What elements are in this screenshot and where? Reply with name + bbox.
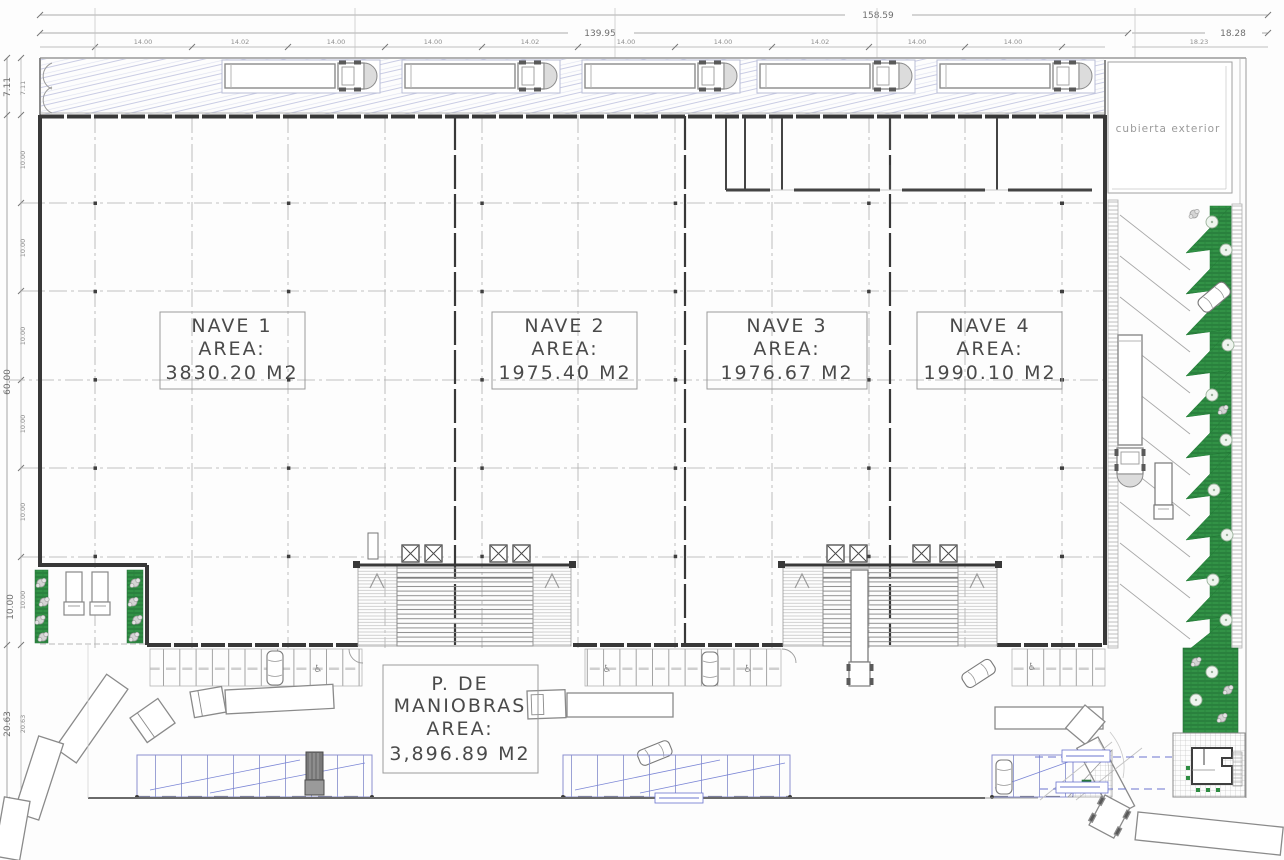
dock-stairs (783, 566, 823, 646)
parked-car-icon (996, 760, 1012, 794)
nave-area-label: AREA: (753, 338, 820, 360)
dock-stairs (358, 566, 397, 646)
entering-truck-icon (1087, 794, 1283, 855)
dim-building-depth: 60.00 (3, 369, 13, 395)
truck-icon (225, 61, 377, 92)
dim-canopy-depth: 7.11 (3, 77, 13, 97)
dimension-lines-top: 158.59 139.95 18.28 14.00 14.02 14.00 14… (37, 8, 1271, 58)
car-icon (702, 652, 718, 686)
small-cart-icon (368, 533, 378, 559)
loading-dock-b (778, 545, 1002, 686)
dock-stairs (958, 566, 997, 646)
right-driveway-zone: cubierta exterior (1108, 58, 1246, 798)
dim-left-bay: 10.00 (19, 415, 27, 434)
dock-leveler-icon (850, 545, 867, 562)
accessible-parking-icon: ♿ (314, 664, 323, 675)
truck-icon (940, 61, 1092, 92)
dim-bay: 14.00 (327, 38, 346, 46)
floor-plan-canvas: 158.59 139.95 18.28 14.00 14.02 14.00 14… (0, 0, 1284, 860)
dim-bay: 14.00 (617, 38, 636, 46)
truck-icon (527, 690, 673, 719)
dock-leveler-icon (490, 545, 507, 562)
dock-leveler-icon (913, 545, 930, 562)
truck-icon (760, 61, 912, 92)
dim-dock-depth: 10.00 (6, 594, 16, 620)
parked-trailer-truck-icon (305, 752, 324, 795)
sidewalk-strip (1232, 204, 1242, 648)
dim-bay: 14.02 (521, 38, 540, 46)
dim-left-bay: 10.00 (19, 591, 27, 610)
dim-bay: 14.00 (714, 38, 733, 46)
dim-left-bay: 10.00 (19, 239, 27, 258)
dim-right-width: 18.28 (1220, 29, 1246, 39)
truck-icon (1115, 335, 1146, 487)
car-parking-rows: ♿ ♿ ♿ ♿ (150, 649, 1105, 686)
maneuver-line: AREA: (426, 718, 493, 740)
dim-bay: 14.00 (908, 38, 927, 46)
car-icon (267, 651, 283, 685)
nave-name: NAVE 3 (746, 315, 827, 337)
dock-leveler-icon (425, 545, 442, 562)
dim-building-width: 139.95 (584, 29, 616, 39)
nave-area-value: 1975.40 M2 (498, 362, 631, 384)
dim-canopy-depth-inner: 7.11 (19, 81, 27, 95)
maneuver-line: MANIOBRAS (394, 695, 527, 717)
dim-left-bay: 10.00 (19, 327, 27, 346)
exterior-roof-label: cubierta exterior (1116, 123, 1221, 135)
entry-alcove (35, 570, 147, 644)
dim-yard-depth: 20.63 (3, 711, 13, 737)
dim-bay-right: 18.23 (1190, 38, 1209, 46)
loading-canopy (40, 58, 1246, 116)
parked-truck-icon (64, 572, 110, 615)
nave-name: NAVE 2 (524, 315, 605, 337)
dim-bay: 14.00 (1004, 38, 1023, 46)
dock-leveler-icon (513, 545, 530, 562)
nave-area-value: 3830.20 M2 (165, 362, 298, 384)
dock-leveler-icon (402, 545, 419, 562)
accessible-parking-icon: ♿ (603, 664, 612, 675)
dim-bay: 14.00 (424, 38, 443, 46)
floor-plan-page: 158.59 139.95 18.28 14.00 14.02 14.00 14… (0, 0, 1284, 860)
nave-name: NAVE 4 (949, 315, 1030, 337)
office-rooms (726, 118, 1092, 190)
nave-area-label: AREA: (531, 338, 598, 360)
sidewalk-strip (1108, 200, 1118, 648)
nave-name: NAVE 1 (191, 315, 272, 337)
truck-icon (585, 61, 737, 92)
dock-leveler-icon (827, 545, 844, 562)
accessible-parking-icon: ♿ (1028, 662, 1037, 673)
maneuver-line: 3,896.89 M2 (389, 743, 530, 765)
dimension-lines-left: 7.11 7.11 60.00 10.00 10.00 10.00 10.00 … (3, 55, 27, 803)
nave-area-label: AREA: (956, 338, 1023, 360)
dim-left-bay: 10.00 (19, 503, 27, 522)
nave-area-label: AREA: (198, 338, 265, 360)
truck-icon (405, 61, 557, 92)
accessible-parking-icon: ♿ (744, 664, 753, 675)
dim-bay: 14.02 (811, 38, 830, 46)
dim-bay: 14.02 (231, 38, 250, 46)
maneuver-line: P. DE (431, 673, 488, 695)
dim-overall-width: 158.59 (862, 11, 894, 21)
nave-area-value: 1976.67 M2 (720, 362, 853, 384)
ladder-icon (1233, 752, 1242, 786)
car-icon (960, 657, 997, 689)
dim-left-bay: 10.00 (19, 151, 27, 170)
box-truck-icon (1154, 463, 1173, 519)
dock-stairs (533, 566, 571, 646)
trailer-parking-rows (135, 752, 1073, 799)
dim-bay: 14.00 (134, 38, 153, 46)
maneuver-area-label: P. DE MANIOBRAS AREA: 3,896.89 M2 (383, 665, 538, 773)
dim-yard-depth-inner: 20.63 (19, 715, 27, 734)
nave-area-value: 1990.10 M2 (923, 362, 1056, 384)
exterior-roof-area: cubierta exterior (1108, 62, 1232, 193)
dock-leveler-icon (940, 545, 957, 562)
landscape-sawtooth (1186, 206, 1231, 652)
